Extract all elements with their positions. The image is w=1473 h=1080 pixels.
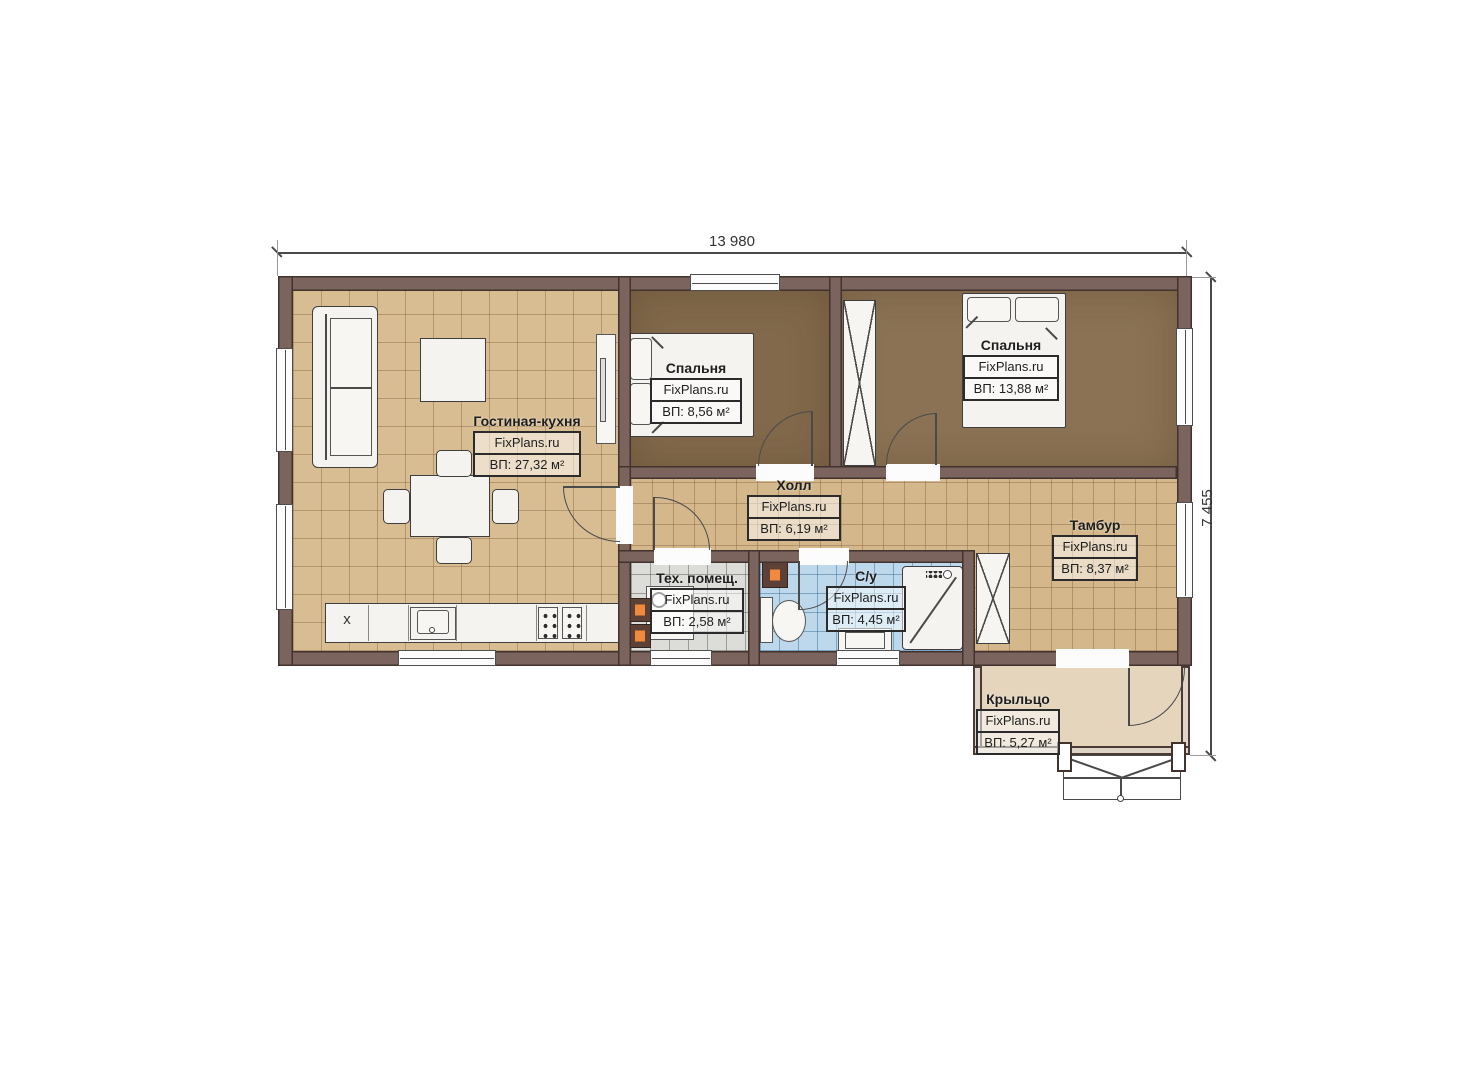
room-brand: FixPlans.ru <box>978 711 1058 731</box>
room-info-box: FixPlans.ru ВП: 8,56 м² <box>650 378 742 424</box>
room-brand: FixPlans.ru <box>749 497 839 517</box>
window-bottom-living <box>398 650 496 666</box>
room-brand: FixPlans.ru <box>965 357 1057 377</box>
counter-divider <box>456 605 457 641</box>
door-leaf <box>1128 668 1130 726</box>
counter-divider <box>368 605 369 641</box>
window-bottom-bath <box>836 650 900 666</box>
room-name: Тамбур <box>1052 517 1138 533</box>
wardrobe <box>976 553 1010 644</box>
room-info-box: FixPlans.ru ВП: 27,32 м² <box>473 431 581 477</box>
room-name: Спальня <box>963 337 1059 353</box>
room-name: Тех. помещ. <box>650 570 744 586</box>
room-label-vestibule: Тамбур FixPlans.ru ВП: 8,37 м² <box>1052 517 1138 581</box>
bathroom-sink-basin <box>845 632 885 649</box>
window-mullion <box>285 506 286 608</box>
fridge-x-mark: x <box>343 611 351 628</box>
room-label-bathroom: С/у FixPlans.ru ВП: 4,45 м² <box>826 568 906 632</box>
room-area: ВП: 4,45 м² <box>828 608 904 630</box>
extension-line <box>1186 240 1187 276</box>
sofa-cushion-divider <box>330 387 372 389</box>
room-area: ВП: 2,58 м² <box>652 610 742 632</box>
door-leaf <box>935 413 937 465</box>
pillow <box>630 383 652 425</box>
wall-bath-vestibule <box>962 550 975 666</box>
room-label-bedroom1: Спальня FixPlans.ru ВП: 8,56 м² <box>650 360 742 424</box>
shower-head <box>943 570 952 579</box>
pillow <box>630 338 652 380</box>
room-area: ВП: 27,32 м² <box>475 453 579 475</box>
panel-indicator <box>635 605 645 616</box>
tv-stand <box>596 334 616 444</box>
tv <box>600 358 606 422</box>
electrical-panel <box>629 624 651 648</box>
room-info-box: FixPlans.ru ВП: 13,88 м² <box>963 355 1059 401</box>
room-info-box: FixPlans.ru ВП: 2,58 м² <box>650 588 744 634</box>
chair <box>492 489 519 524</box>
chair <box>436 450 472 477</box>
shower-spray-dots <box>926 571 942 578</box>
window-mullion <box>652 658 710 659</box>
room-brand: FixPlans.ru <box>828 588 904 608</box>
chair <box>436 537 472 564</box>
window-mullion <box>838 658 898 659</box>
window-left-upper <box>276 348 293 452</box>
window-mullion <box>400 658 494 659</box>
floor-plan-canvas: x <box>0 0 1473 1080</box>
water-heater <box>762 562 788 588</box>
room-area: ВП: 6,19 м² <box>749 517 839 539</box>
doorway-tech-room <box>654 548 711 565</box>
panel-indicator <box>635 631 645 642</box>
window-top-bedroom1 <box>690 274 780 291</box>
room-area: ВП: 8,56 м² <box>652 400 740 422</box>
room-brand: FixPlans.ru <box>475 433 579 453</box>
window-mullion <box>1185 330 1186 424</box>
room-area: ВП: 8,37 м² <box>1054 557 1136 579</box>
room-label-bedroom2: Спальня FixPlans.ru ВП: 13,88 м² <box>963 337 1059 401</box>
room-name: Гостиная-кухня <box>473 413 581 429</box>
wall-bedroom1-bedroom2 <box>829 276 842 479</box>
doorway-entrance <box>1056 649 1129 668</box>
window-right-bedroom2 <box>1176 328 1193 426</box>
porch-post <box>1171 742 1186 772</box>
room-brand: FixPlans.ru <box>652 590 742 610</box>
chair <box>383 489 410 524</box>
room-label-living-kitchen: Гостиная-кухня FixPlans.ru ВП: 27,32 м² <box>473 413 581 477</box>
dimension-height-label: 7 455 <box>1199 475 1215 541</box>
window-mullion <box>285 350 286 450</box>
room-area: ВП: 5,27 м² <box>978 731 1058 753</box>
wall-tech-bath <box>748 550 760 666</box>
room-brand: FixPlans.ru <box>652 380 740 400</box>
pillow <box>1015 297 1059 322</box>
wall-living-bedroom1 <box>618 276 631 479</box>
window-mullion <box>692 283 778 284</box>
extension-line <box>1192 277 1216 278</box>
extension-line <box>1190 755 1216 756</box>
stove-burners <box>538 607 558 639</box>
room-area: ВП: 13,88 м² <box>965 377 1057 399</box>
counter-divider <box>408 605 409 641</box>
sofa-backrest <box>325 314 327 460</box>
door-leaf <box>811 411 813 466</box>
window-bottom-tech <box>650 650 712 666</box>
dimension-width-label: 13 980 <box>696 233 768 250</box>
door-leaf <box>653 497 655 550</box>
wardrobe <box>843 300 876 466</box>
room-name: С/у <box>826 568 906 584</box>
room-name: Спальня <box>650 360 742 376</box>
room-brand: FixPlans.ru <box>1054 537 1136 557</box>
steps-marker <box>1117 795 1124 802</box>
window-right-vestibule <box>1176 502 1193 598</box>
door-leaf <box>563 486 620 488</box>
room-name: Крыльцо <box>976 691 1060 707</box>
room-name: Холл <box>747 477 841 493</box>
electrical-panel <box>629 598 651 622</box>
window-left-lower <box>276 504 293 610</box>
counter-divider <box>536 605 537 641</box>
room-label-hall: Холл FixPlans.ru ВП: 6,19 м² <box>747 477 841 541</box>
room-label-tech-room: Тех. помещ. FixPlans.ru ВП: 2,58 м² <box>650 570 744 634</box>
stove-burners <box>562 607 582 639</box>
sink-drain <box>429 627 435 633</box>
extension-line <box>277 240 278 276</box>
fridge: x <box>327 611 367 628</box>
dining-table <box>410 475 490 537</box>
room-info-box: FixPlans.ru ВП: 4,45 м² <box>826 586 906 632</box>
doorway-bedroom2 <box>886 464 940 481</box>
coffee-table <box>420 338 486 402</box>
counter-divider <box>586 605 587 641</box>
heater-indicator <box>770 570 780 581</box>
room-info-box: FixPlans.ru ВП: 5,27 м² <box>976 709 1060 755</box>
dimension-line-top <box>277 252 1187 254</box>
room-info-box: FixPlans.ru ВП: 8,37 м² <box>1052 535 1138 581</box>
window-mullion <box>1185 504 1186 596</box>
door-leaf <box>798 561 800 610</box>
room-info-box: FixPlans.ru ВП: 6,19 м² <box>747 495 841 541</box>
room-label-porch: Крыльцо FixPlans.ru ВП: 5,27 м² <box>976 691 1060 755</box>
